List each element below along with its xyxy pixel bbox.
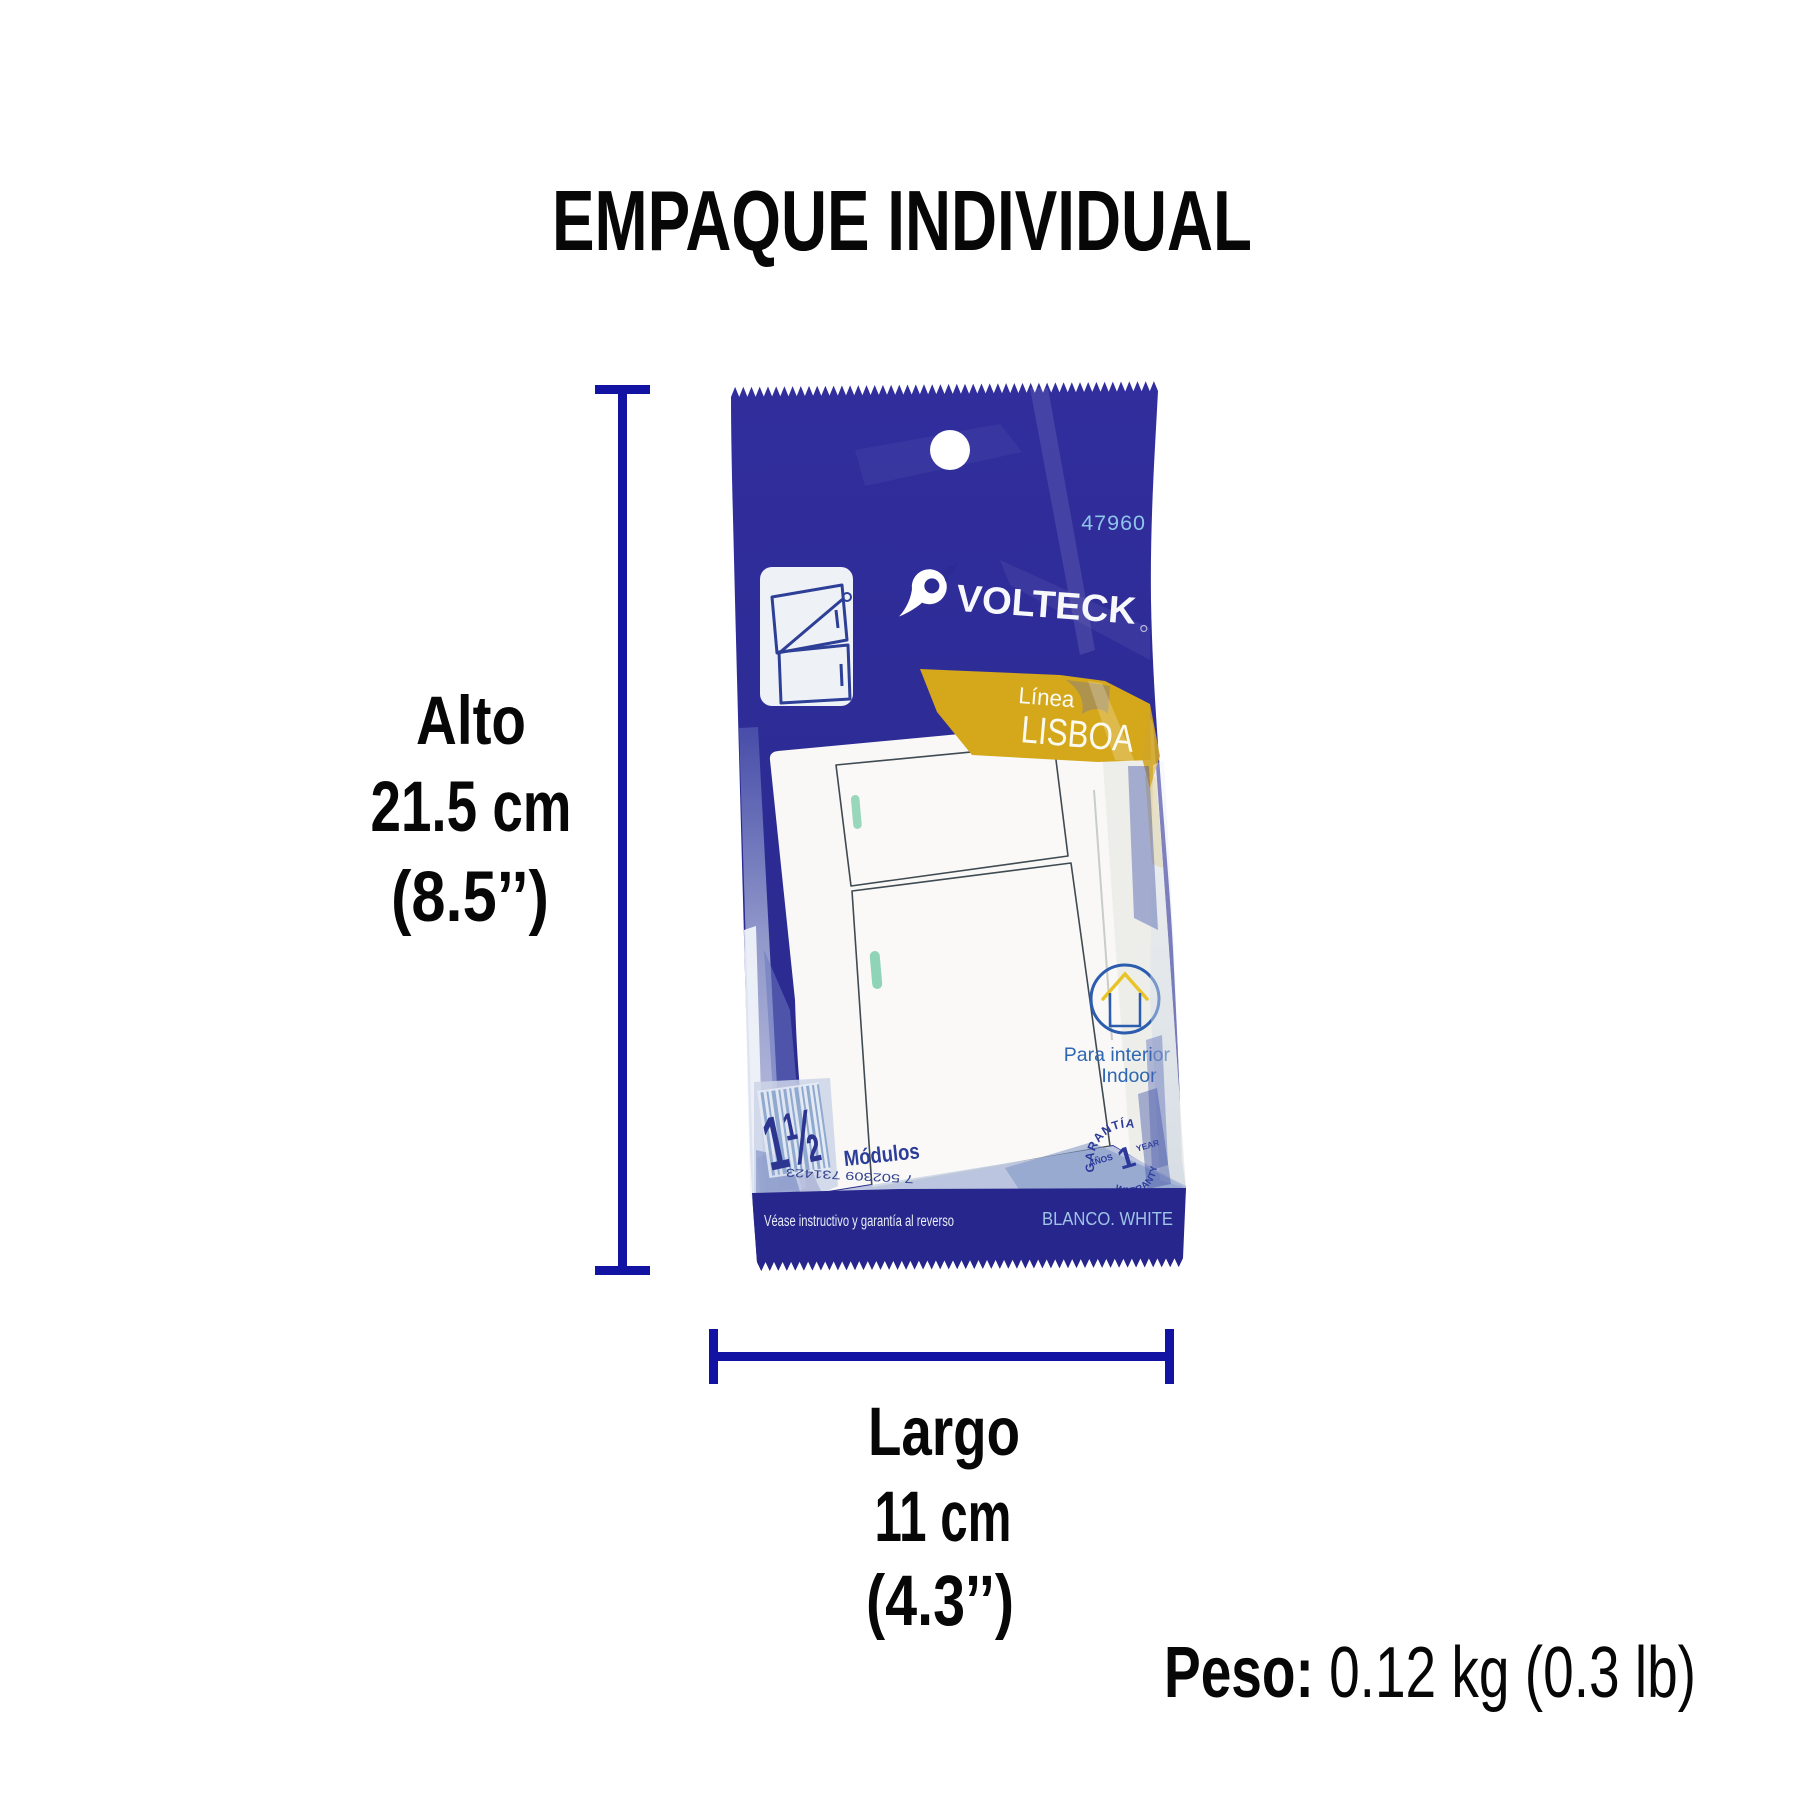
svg-text:47960: 47960 xyxy=(1081,511,1146,535)
svg-text:21.5 cm: 21.5 cm xyxy=(371,768,572,847)
svg-text:Peso: 0.12 kg (0.3 lb): Peso: 0.12 kg (0.3 lb) xyxy=(1164,1633,1696,1713)
svg-text:(4.3’’): (4.3’’) xyxy=(866,1562,1014,1641)
svg-text:11 cm: 11 cm xyxy=(875,1478,1012,1557)
svg-text:Largo: Largo xyxy=(868,1393,1020,1470)
svg-text:Alto: Alto xyxy=(416,682,526,759)
svg-text:Línea: Línea xyxy=(1018,682,1076,712)
svg-text:Véase instructivo y garantía a: Véase instructivo y garantía al reverso xyxy=(764,1213,954,1230)
svg-text:BLANCO. WHITE: BLANCO. WHITE xyxy=(1042,1209,1173,1229)
svg-text:EMPAQUE INDIVIDUAL: EMPAQUE INDIVIDUAL xyxy=(552,174,1252,269)
svg-text:(8.5’’): (8.5’’) xyxy=(391,858,549,937)
